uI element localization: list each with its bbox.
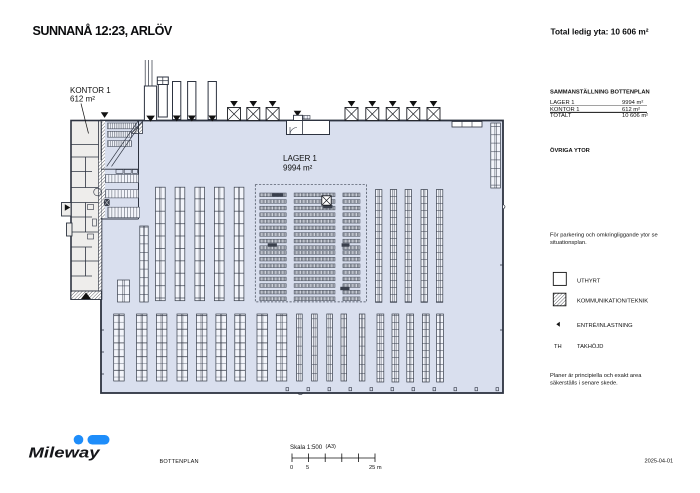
svg-text:TAKHÖJD: TAKHÖJD [577,343,603,350]
svg-text:9994 m²: 9994 m² [622,100,643,106]
svg-text:SAMMANSTÄLLNING BOTTENPLAN: SAMMANSTÄLLNING BOTTENPLAN [550,89,650,96]
svg-text:0: 0 [290,465,293,471]
svg-text:10 606 m²: 10 606 m² [622,113,648,119]
svg-text:2025-04-01: 2025-04-01 [645,459,674,465]
svg-text:säkerställs i senare skede.: säkerställs i senare skede. [550,381,618,387]
svg-text:SUNNANÅ 12:23, ARLÖV: SUNNANÅ 12:23, ARLÖV [33,23,173,38]
svg-text:Mileway: Mileway [29,445,102,462]
svg-text:(A3): (A3) [326,444,337,450]
svg-text:25 m: 25 m [369,465,382,471]
svg-text:612 m²: 612 m² [70,95,95,104]
svg-text:För parkering och omkringligga: För parkering och omkringliggande ytor s… [550,233,658,239]
svg-text:Planer är principiella och exa: Planer är principiella och exakt area [550,373,642,379]
svg-text:TH: TH [554,344,562,350]
svg-text:ENTRÉ/INLASTNING: ENTRÉ/INLASTNING [577,322,633,329]
svg-text:LAGER 1: LAGER 1 [283,154,317,163]
svg-text:Total ledig yta: 10 606 m²: Total ledig yta: 10 606 m² [551,27,649,37]
svg-text:ÖVRIGA YTOR: ÖVRIGA YTOR [550,147,591,154]
svg-text:BOTTENPLAN: BOTTENPLAN [160,459,199,465]
svg-text:situationsplan.: situationsplan. [550,240,587,246]
svg-text:UTHYRT: UTHYRT [577,279,601,285]
svg-text:KOMMUNIKATION/TEKNIK: KOMMUNIKATION/TEKNIK [577,299,648,305]
svg-text:5: 5 [306,465,309,471]
svg-text:9994 m²: 9994 m² [283,164,313,173]
svg-text:Skala 1:500: Skala 1:500 [290,444,323,451]
svg-text:LAGER 1: LAGER 1 [550,100,575,106]
svg-text:TOTALT: TOTALT [550,113,572,119]
